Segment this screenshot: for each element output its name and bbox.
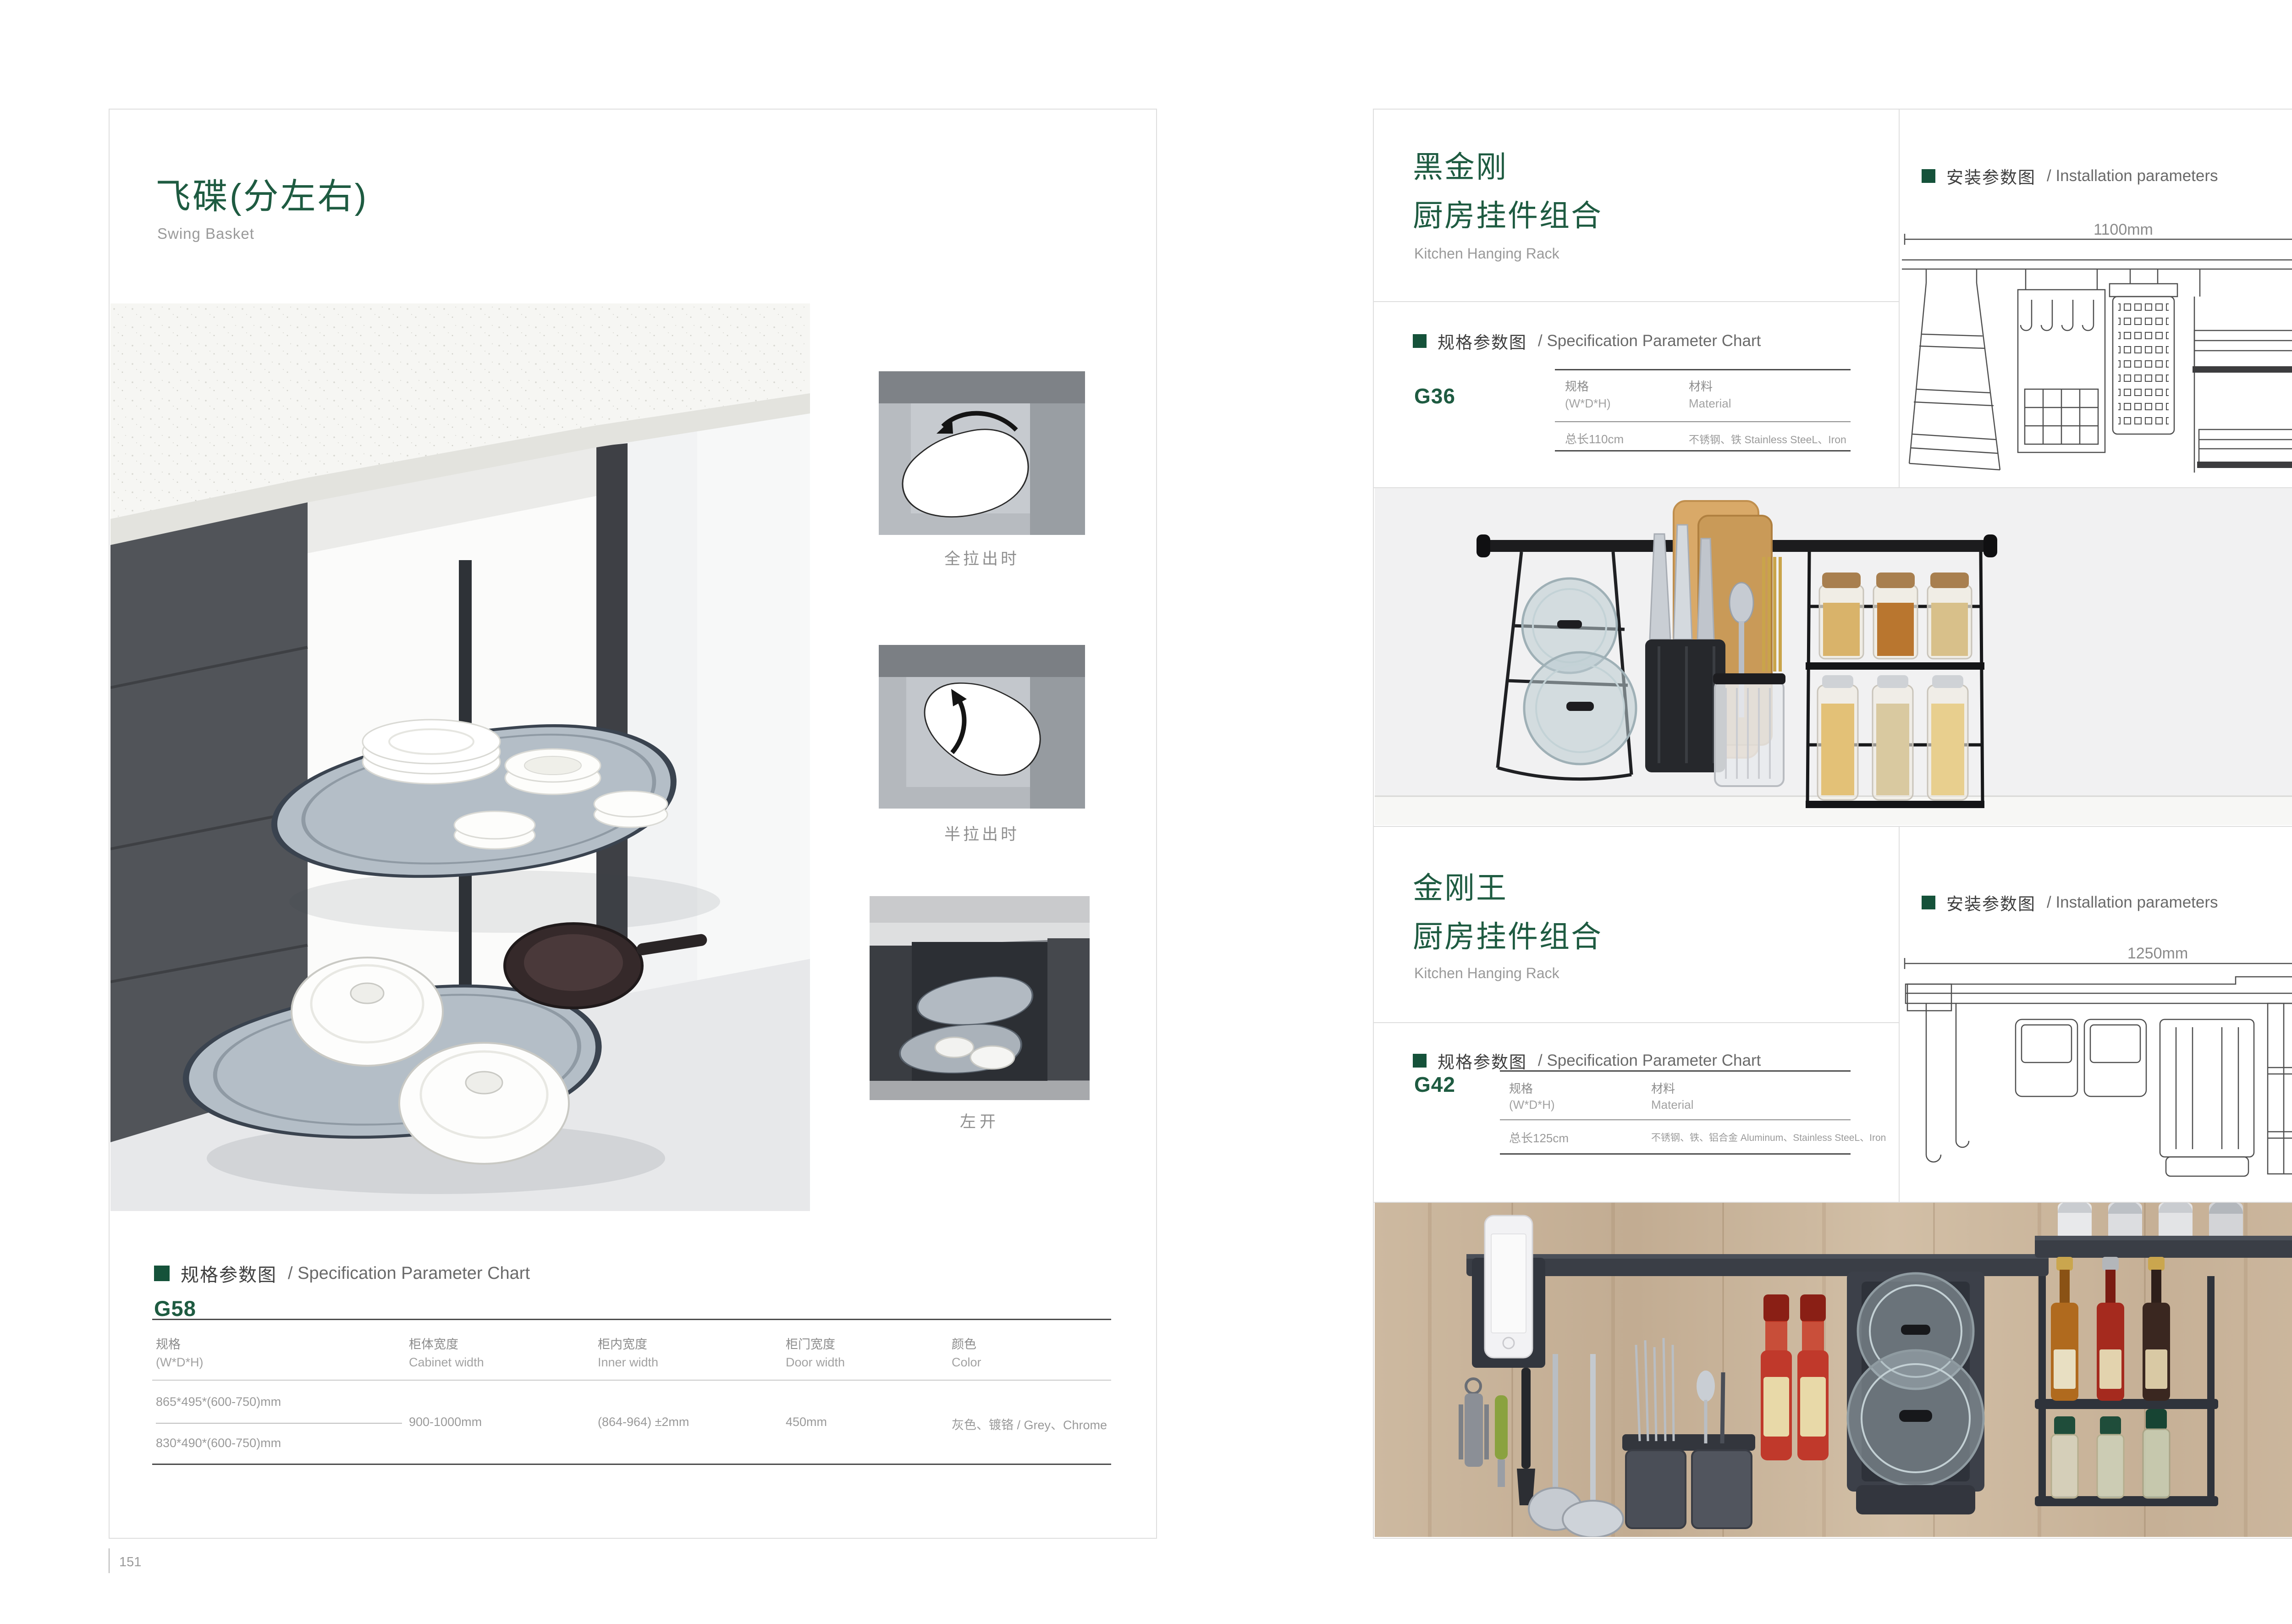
- product2-title-en: Kitchen Hanging Rack: [1414, 965, 1559, 982]
- col-spec-en: (W*D*H): [1565, 396, 1611, 411]
- product2-photo: [1375, 1203, 2292, 1537]
- caption-full-out: 全拉出时: [879, 546, 1085, 569]
- sauce-bottles: [2051, 1257, 2170, 1401]
- spice-jars: [1819, 573, 1972, 659]
- rule: [1555, 450, 1851, 451]
- table-header-rule: [152, 1380, 1111, 1381]
- rule: [1555, 369, 1851, 370]
- col-spec-en: (W*D*H): [1509, 1098, 1555, 1112]
- rule: [1555, 421, 1851, 422]
- col-spec-cn: 规格: [156, 1334, 181, 1352]
- product2-spec-header: 规格参数图 / Specification Parameter Chart: [1413, 1048, 1761, 1073]
- grid-vline-1: [1899, 110, 1900, 487]
- lid-holder-outline: [2160, 1019, 2254, 1176]
- grid-hline-title2: [1374, 1022, 1899, 1023]
- product1-spec-table: 规格 (W*D*H) 材料 Material 总长110cm 不锈钢、铁 Sta…: [1555, 369, 1851, 451]
- product1-model: G36: [1414, 384, 1455, 408]
- spec-size-a: 865*495*(600-750)mm: [156, 1395, 281, 1409]
- jar-rack: [1806, 552, 1984, 808]
- val-door-width: 450mm: [786, 1415, 827, 1429]
- hook-panel-outline: [2018, 269, 2105, 452]
- green-square-icon: [154, 1266, 170, 1281]
- col-door-cn: 柜门宽度: [786, 1334, 835, 1352]
- col-material-en: Material: [1651, 1098, 1693, 1112]
- white-pot-large: [399, 1043, 569, 1164]
- catalog-spread: 飞碟(分左右) Swing Basket: [0, 0, 2292, 1624]
- dim-width-2: 1250mm: [2112, 945, 2204, 963]
- pasta-jars: [1818, 675, 1968, 800]
- perforated-holder-outline: [2110, 269, 2177, 434]
- grid-hline-title1: [1374, 301, 1899, 302]
- page-152: 黑金刚 厨房挂件组合 Kitchen Hanging Rack 规格参数图 / …: [1373, 109, 2292, 1539]
- val-length: 总长110cm: [1565, 430, 1624, 447]
- page-number-left: 151: [119, 1555, 141, 1570]
- grid-vline-2: [1899, 826, 1900, 1202]
- spec-size-b: 830*490*(600-750)mm: [156, 1436, 281, 1450]
- caption-half-out: 半拉出时: [879, 821, 1085, 845]
- col-material-en: Material: [1689, 396, 1731, 411]
- grid-hline-photo1-bottom: [1374, 826, 2292, 827]
- val-material: 不锈钢、铁 Stainless SteeL、Iron: [1689, 431, 1846, 446]
- shelf-unit-outline: [2268, 1003, 2292, 1174]
- spec-size-divider: [156, 1423, 402, 1424]
- chopstick-basket: [1713, 673, 1785, 786]
- install-label-en: / Installation parameters: [2047, 167, 2218, 185]
- col-cabinet-en: Cabinet width: [409, 1355, 484, 1370]
- cup-boxes-outline: [2016, 1019, 2146, 1096]
- val-cabinet-width: 900-1000mm: [409, 1415, 482, 1429]
- spec-label-en: / Specification Parameter Chart: [1538, 332, 1761, 350]
- val-material: 不锈钢、铁、铝合金 Aluminum、Stainless SteeL、Iron: [1651, 1130, 1886, 1144]
- swing-basket-photo: [110, 303, 810, 1211]
- spec-label-cn: 规格参数图: [1438, 1048, 1527, 1073]
- white-pot-small: [292, 958, 443, 1066]
- page-151: 飞碟(分左右) Swing Basket: [109, 109, 1157, 1539]
- spec-table: 规格 (W*D*H) 柜体宽度 Cabinet width 柜内宽度 Inner…: [152, 1319, 1111, 1465]
- product2-install-header: 安装参数图 / Installation parameters: [1922, 890, 2218, 915]
- rule: [1500, 1070, 1851, 1072]
- page-number-tick-left: [109, 1548, 110, 1573]
- diagram-full-out: [879, 371, 1085, 535]
- spec-label-en: / Specification Parameter Chart: [1538, 1051, 1761, 1070]
- plate-stack: [363, 720, 500, 784]
- spec-label-cn: 规格参数图: [1438, 329, 1527, 353]
- spec-label-cn: 规格参数图: [181, 1260, 277, 1287]
- table-top-rule: [152, 1319, 1111, 1320]
- col-spec-cn: 规格: [1565, 377, 1589, 394]
- install-label-cn: 安装参数图: [1946, 164, 2036, 188]
- product2-title-line1: 金刚王: [1413, 864, 1508, 908]
- two-tier-rack-outline: [2193, 269, 2292, 473]
- col-cabinet-cn: 柜体宽度: [409, 1334, 458, 1352]
- product1-spec-header: 规格参数图 / Specification Parameter Chart: [1413, 329, 1761, 353]
- install-label-en: / Installation parameters: [2047, 893, 2218, 912]
- product1-photo: [1375, 488, 2292, 825]
- caption-left-open: 左开: [870, 1109, 1090, 1132]
- col-material-cn: 材料: [1651, 1079, 1675, 1096]
- col-color-en: Color: [952, 1355, 981, 1370]
- install-label-cn: 安装参数图: [1946, 890, 2036, 915]
- val-inner-width: (864-964) ±2mm: [598, 1415, 689, 1429]
- col-color-cn: 颜色: [952, 1334, 976, 1352]
- spec-section-header: 规格参数图 / Specification Parameter Chart: [154, 1260, 530, 1287]
- product1-install-diagram: [1901, 215, 2292, 490]
- rule: [1500, 1119, 1851, 1120]
- green-square-icon: [1922, 896, 1935, 909]
- spice-bottles: [2051, 1409, 2170, 1498]
- dim-width-1: 1100mm: [2077, 221, 2169, 239]
- spec-label-en: / Specification Parameter Chart: [288, 1264, 530, 1283]
- val-color: 灰色、镀铬 / Grey、Chrome: [952, 1415, 1107, 1433]
- lid-rack-outline: [1909, 269, 2000, 470]
- model-code: G58: [154, 1296, 196, 1321]
- lid-holder-panel: [1847, 1272, 1984, 1514]
- green-square-icon: [1413, 334, 1427, 348]
- product2-install-diagram: [1901, 930, 2292, 1196]
- hooks-outline: [1926, 1003, 1969, 1162]
- col-inner-cn: 柜内宽度: [598, 1334, 647, 1352]
- page-subtitle: Swing Basket: [157, 225, 254, 242]
- col-door-en: Door width: [786, 1355, 845, 1370]
- diagram-left-open: [870, 896, 1090, 1100]
- product1-title-en: Kitchen Hanging Rack: [1414, 245, 1559, 262]
- col-spec-cn: 规格: [1509, 1079, 1533, 1096]
- page-title: 飞碟(分左右): [155, 168, 368, 219]
- green-square-icon: [1413, 1054, 1427, 1068]
- product2-model: G42: [1414, 1072, 1455, 1097]
- product1-install-header: 安装参数图 / Installation parameters: [1922, 164, 2218, 188]
- product1-title-line1: 黑金刚: [1413, 143, 1508, 187]
- product2-spec-table: 规格 (W*D*H) 材料 Material 总长125cm 不锈钢、铁、铝合金…: [1500, 1070, 1851, 1155]
- val-length: 总长125cm: [1509, 1129, 1569, 1146]
- green-square-icon: [1922, 169, 1935, 183]
- col-spec-en: (W*D*H): [156, 1355, 203, 1370]
- product2-title-line2: 厨房挂件组合: [1413, 912, 1603, 956]
- product1-title-line2: 厨房挂件组合: [1413, 191, 1603, 235]
- table-bottom-rule: [152, 1464, 1111, 1465]
- rule: [1500, 1153, 1851, 1155]
- col-material-cn: 材料: [1689, 377, 1713, 394]
- col-inner-en: Inner width: [598, 1355, 658, 1370]
- diagram-half-out: [879, 645, 1085, 809]
